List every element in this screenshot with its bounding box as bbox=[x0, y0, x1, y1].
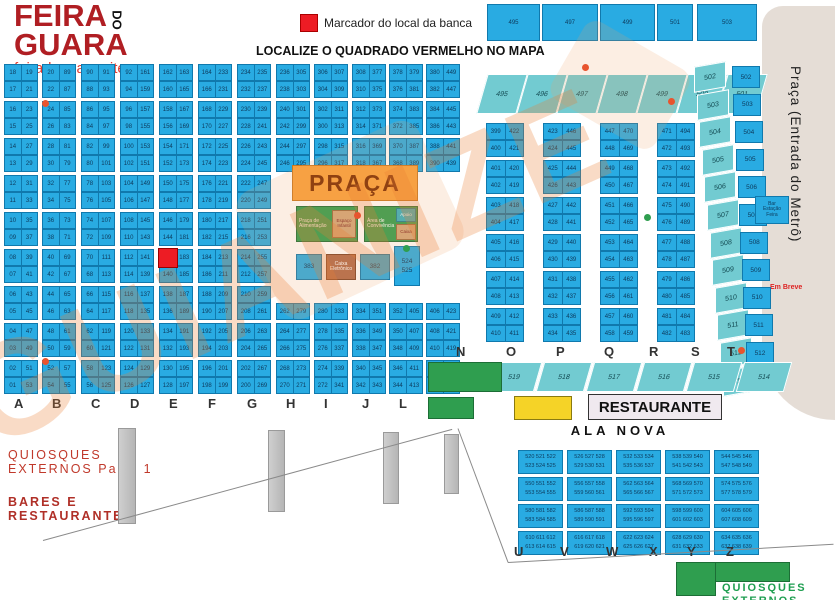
stall-cell[interactable]: 206 bbox=[238, 324, 255, 339]
stall-cell[interactable]: 37 bbox=[22, 230, 38, 245]
stall-cell[interactable]: 90 bbox=[82, 65, 99, 80]
stall-cell[interactable]: 409 bbox=[487, 309, 506, 324]
stall-cell[interactable]: 445 bbox=[444, 102, 460, 117]
stall-cell[interactable]: 439 bbox=[444, 156, 460, 171]
stall-cell[interactable]: 149 bbox=[138, 176, 154, 191]
stall-cell[interactable]: 226 bbox=[238, 139, 255, 154]
stall-cell[interactable]: 192 bbox=[199, 324, 216, 339]
stall-cell[interactable]: 464 bbox=[620, 235, 638, 250]
stall-cell[interactable]: 374 bbox=[390, 102, 407, 117]
stall-cell[interactable]: 15 bbox=[5, 119, 22, 134]
stall-cell[interactable]: 444 bbox=[563, 161, 581, 176]
stall-cell[interactable]: 98 bbox=[121, 119, 138, 134]
stall-cell[interactable]: 495 bbox=[487, 4, 540, 41]
stall-cell[interactable]: 200 bbox=[238, 378, 255, 393]
stall-cell[interactable]: 102 bbox=[121, 156, 138, 171]
stall-cell[interactable]: 511 bbox=[745, 314, 773, 336]
stall-cell[interactable]: 431 bbox=[544, 272, 563, 287]
stall-cell[interactable]: 128 bbox=[160, 378, 177, 393]
stall-cell[interactable]: 310 bbox=[353, 82, 370, 97]
stall-cell[interactable]: 381 bbox=[407, 82, 423, 97]
stall-cell[interactable]: 53 bbox=[22, 378, 38, 393]
stall-cell[interactable]: 178 bbox=[199, 193, 216, 208]
stall-cell[interactable]: 300 bbox=[315, 119, 332, 134]
stall-cell[interactable]: 508 bbox=[710, 227, 742, 259]
stall-cell[interactable]: 150 bbox=[160, 176, 177, 191]
stall-cell[interactable]: 18 bbox=[5, 65, 22, 80]
stall-cell[interactable]: 306 bbox=[315, 65, 332, 80]
stall-cell[interactable]: 34 bbox=[43, 193, 60, 208]
stall-cell[interactable]: 49 bbox=[22, 341, 38, 356]
stall-cell[interactable]: 438 bbox=[563, 272, 581, 287]
stall-cell[interactable]: 210 bbox=[238, 287, 255, 302]
stall-cell[interactable]: 504 bbox=[699, 116, 731, 148]
stall-cell[interactable]: 311 bbox=[332, 102, 348, 117]
stall-cell[interactable]: 199 bbox=[216, 378, 232, 393]
stall-cell[interactable]: 413 bbox=[506, 289, 524, 304]
stall-cell[interactable]: 54 bbox=[43, 378, 60, 393]
stall-cell[interactable]: 409 bbox=[407, 341, 423, 356]
stall-cell[interactable]: 86 bbox=[82, 102, 99, 117]
stall-cell[interactable]: 515 bbox=[686, 362, 743, 392]
stall-cell[interactable]: 504 bbox=[735, 121, 763, 143]
stall-cell[interactable]: 481 bbox=[658, 309, 677, 324]
stall-cell[interactable]: 428 bbox=[544, 215, 563, 230]
stall-cell[interactable]: 378 bbox=[390, 65, 407, 80]
stall-cell[interactable]: 249 bbox=[255, 193, 271, 208]
stall-cell[interactable]: 518 bbox=[536, 362, 593, 392]
stall-cell[interactable]: 146 bbox=[160, 213, 177, 228]
stall-cell[interactable]: 275 bbox=[294, 341, 310, 356]
stall-block[interactable]: 634 635 636637 638 639 bbox=[714, 531, 759, 555]
stall-cell[interactable]: 167 bbox=[177, 102, 193, 117]
stall-cell[interactable]: 512 bbox=[746, 342, 774, 364]
stall-cell[interactable]: 27 bbox=[22, 139, 38, 154]
stall-cell[interactable]: 298 bbox=[315, 139, 332, 154]
stall-cell[interactable]: 189 bbox=[177, 304, 193, 319]
stall-cell[interactable]: 208 bbox=[238, 304, 255, 319]
stall-cell[interactable]: 480 bbox=[658, 289, 677, 304]
stall-cell[interactable]: 127 bbox=[138, 378, 154, 393]
stall-cell[interactable]: 13 bbox=[5, 156, 22, 171]
stall-cell[interactable]: 236 bbox=[277, 65, 294, 80]
stall-cell[interactable]: 462 bbox=[620, 272, 638, 287]
stall-cell[interactable]: 223 bbox=[216, 156, 232, 171]
stall-cell[interactable]: 92 bbox=[121, 65, 138, 80]
stall-cell[interactable]: 40 bbox=[43, 250, 60, 265]
stall-cell[interactable]: 505 bbox=[702, 144, 734, 176]
stall-cell[interactable]: 279 bbox=[294, 304, 310, 319]
stall-cell[interactable]: 213 bbox=[216, 250, 232, 265]
stall-cell[interactable]: 144 bbox=[160, 230, 177, 245]
stall-cell[interactable]: 418 bbox=[506, 198, 524, 213]
stall-block[interactable]: 520 521 522523 524 525 bbox=[518, 450, 563, 474]
stall-cell[interactable]: 380 bbox=[427, 65, 444, 80]
stall-cell[interactable]: 403 bbox=[487, 198, 506, 213]
stall-cell[interactable]: 454 bbox=[601, 252, 620, 267]
stall-cell[interactable]: 65 bbox=[60, 287, 76, 302]
stall-cell[interactable]: 338 bbox=[353, 341, 370, 356]
stall-cell[interactable]: 117 bbox=[99, 304, 115, 319]
stall-cell[interactable]: 08 bbox=[5, 250, 22, 265]
stall-cell[interactable]: 472 bbox=[658, 141, 677, 156]
stall-cell[interactable]: 373 bbox=[370, 102, 386, 117]
stall-cell[interactable]: 26 bbox=[43, 119, 60, 134]
stall-cell[interactable]: 12 bbox=[5, 176, 22, 191]
stall-cell[interactable]: 161 bbox=[138, 65, 154, 80]
stall-cell[interactable]: 175 bbox=[177, 176, 193, 191]
stall-cell[interactable]: 153 bbox=[138, 139, 154, 154]
stall-cell[interactable]: 449 bbox=[444, 65, 460, 80]
stall-cell[interactable]: 352 bbox=[390, 304, 407, 319]
stall-cell[interactable]: 251 bbox=[255, 213, 271, 228]
stall-cell[interactable]: 50 bbox=[43, 341, 60, 356]
stall-cell[interactable]: 344 bbox=[390, 378, 407, 393]
stall-cell[interactable]: 163 bbox=[177, 65, 193, 80]
stall-cell[interactable]: 215 bbox=[216, 230, 232, 245]
stall-cell[interactable]: 385 bbox=[407, 119, 423, 134]
stall-cell[interactable]: 483 bbox=[677, 326, 695, 341]
stall-cell[interactable]: 159 bbox=[138, 82, 154, 97]
stall-cell[interactable]: 424 bbox=[544, 141, 563, 156]
stall-block[interactable]: 580 581 582583 584 585 bbox=[518, 504, 563, 528]
stall-cell[interactable]: 304 bbox=[315, 82, 332, 97]
stall-cell[interactable]: 134 bbox=[160, 324, 177, 339]
stall-cell[interactable]: 351 bbox=[370, 304, 386, 319]
stall-cell[interactable]: 313 bbox=[332, 119, 348, 134]
stall-cell[interactable]: 280 bbox=[315, 304, 332, 319]
stall-cell[interactable]: 435 bbox=[563, 326, 581, 341]
stall-cell[interactable]: 83 bbox=[60, 119, 76, 134]
stall-cell[interactable]: 503 bbox=[733, 94, 761, 116]
stall-cell[interactable]: 334 bbox=[353, 304, 370, 319]
stall-cell[interactable]: 221 bbox=[216, 176, 232, 191]
stall-cell[interactable]: 74 bbox=[82, 213, 99, 228]
stall-cell[interactable]: 88 bbox=[82, 82, 99, 97]
stall-block[interactable]: 574 575 576577 578 579 bbox=[714, 477, 759, 501]
stall-cell[interactable]: 407 bbox=[407, 324, 423, 339]
stall-block[interactable]: 556 557 558559 560 561 bbox=[567, 477, 612, 501]
stall-cell[interactable]: 253 bbox=[255, 230, 271, 245]
stall-cell[interactable]: 179 bbox=[177, 213, 193, 228]
stall-cell[interactable]: 479 bbox=[658, 272, 677, 287]
stall-cell[interactable]: 276 bbox=[315, 341, 332, 356]
stall-cell[interactable]: 419 bbox=[506, 178, 524, 193]
stall-cell[interactable]: 259 bbox=[255, 287, 271, 302]
stall-cell[interactable]: 82 bbox=[82, 139, 99, 154]
stall-cell[interactable]: 123 bbox=[99, 361, 115, 376]
stall-cell[interactable]: 75 bbox=[60, 193, 76, 208]
stall-cell[interactable]: 120 bbox=[121, 324, 138, 339]
stall-cell[interactable]: 486 bbox=[677, 272, 695, 287]
stall-block[interactable]: 538 539 540541 542 543 bbox=[665, 450, 710, 474]
stall-cell[interactable]: 31 bbox=[22, 176, 38, 191]
stall-cell[interactable]: 263 bbox=[255, 324, 271, 339]
stall-cell[interactable]: 211 bbox=[216, 267, 232, 282]
stall-cell[interactable]: 183 bbox=[177, 250, 193, 265]
stall-383[interactable]: 383 bbox=[296, 254, 322, 280]
stall-cell[interactable]: 491 bbox=[677, 178, 695, 193]
stall-cell[interactable]: 459 bbox=[620, 326, 638, 341]
stall-cell[interactable]: 51 bbox=[22, 361, 38, 376]
stall-cell[interactable]: 230 bbox=[238, 102, 255, 117]
stall-cell[interactable]: 440 bbox=[563, 235, 581, 250]
stall-block[interactable]: 562 563 564565 566 567 bbox=[616, 477, 661, 501]
stall-cell[interactable]: 16 bbox=[5, 102, 22, 117]
stall-cell[interactable]: 106 bbox=[121, 193, 138, 208]
stall-cell[interactable]: 177 bbox=[177, 193, 193, 208]
stall-cell[interactable]: 390 bbox=[427, 156, 444, 171]
stall-cell[interactable]: 46 bbox=[43, 304, 60, 319]
stall-cell[interactable]: 430 bbox=[544, 252, 563, 267]
stall-cell[interactable]: 22 bbox=[43, 82, 60, 97]
stall-block[interactable]: 568 569 570571 572 573 bbox=[665, 477, 710, 501]
stall-524-525[interactable]: 524 525 bbox=[394, 246, 420, 286]
stall-cell[interactable]: 457 bbox=[601, 309, 620, 324]
stall-cell[interactable]: 188 bbox=[199, 287, 216, 302]
stall-cell[interactable]: 137 bbox=[138, 287, 154, 302]
stall-cell[interactable]: 233 bbox=[216, 65, 232, 80]
stall-cell[interactable]: 228 bbox=[238, 119, 255, 134]
stall-cell[interactable]: 505 bbox=[736, 149, 764, 171]
stall-cell[interactable]: 441 bbox=[563, 215, 581, 230]
stall-cell[interactable]: 377 bbox=[370, 65, 386, 80]
stall-cell[interactable]: 274 bbox=[315, 361, 332, 376]
stall-cell[interactable]: 191 bbox=[177, 324, 193, 339]
stall-cell[interactable]: 305 bbox=[294, 65, 310, 80]
stall-cell[interactable]: 216 bbox=[238, 230, 255, 245]
stall-cell[interactable]: 449 bbox=[601, 161, 620, 176]
stall-cell[interactable]: 214 bbox=[238, 250, 255, 265]
stall-cell[interactable]: 10 bbox=[5, 213, 22, 228]
stall-cell[interactable]: 270 bbox=[277, 378, 294, 393]
stall-cell[interactable]: 400 bbox=[487, 141, 506, 156]
stall-cell[interactable]: 309 bbox=[332, 82, 348, 97]
stall-cell[interactable]: 66 bbox=[82, 287, 99, 302]
stall-cell[interactable]: 124 bbox=[121, 361, 138, 376]
stall-cell[interactable]: 343 bbox=[370, 378, 386, 393]
stall-cell[interactable]: 105 bbox=[99, 193, 115, 208]
stall-cell[interactable]: 417 bbox=[506, 215, 524, 230]
stall-cell[interactable]: 114 bbox=[121, 267, 138, 282]
stall-cell[interactable]: 38 bbox=[43, 230, 60, 245]
stall-cell[interactable]: 205 bbox=[216, 324, 232, 339]
stall-cell[interactable]: 131 bbox=[138, 341, 154, 356]
stall-cell[interactable]: 379 bbox=[407, 65, 423, 80]
stall-cell[interactable]: 414 bbox=[506, 272, 524, 287]
stall-cell[interactable]: 147 bbox=[138, 193, 154, 208]
stall-cell[interactable]: 95 bbox=[99, 102, 115, 117]
stall-cell[interactable]: 212 bbox=[238, 267, 255, 282]
stall-cell[interactable]: 427 bbox=[544, 198, 563, 213]
stall-cell[interactable]: 154 bbox=[160, 139, 177, 154]
stall-cell[interactable]: 350 bbox=[390, 324, 407, 339]
stall-cell[interactable]: 466 bbox=[620, 198, 638, 213]
stall-cell[interactable]: 11 bbox=[5, 193, 22, 208]
stall-cell[interactable]: 176 bbox=[199, 176, 216, 191]
stall-cell[interactable]: 07 bbox=[5, 267, 22, 282]
stall-cell[interactable]: 507 bbox=[707, 199, 739, 231]
stall-cell[interactable]: 157 bbox=[138, 102, 154, 117]
stall-cell[interactable]: 455 bbox=[601, 272, 620, 287]
stall-cell[interactable]: 119 bbox=[99, 324, 115, 339]
stall-cell[interactable]: 314 bbox=[353, 119, 370, 134]
stall-cell[interactable]: 145 bbox=[138, 213, 154, 228]
stall-cell[interactable]: 441 bbox=[444, 139, 460, 154]
stall-cell[interactable]: 244 bbox=[277, 139, 294, 154]
stall-cell[interactable]: 406 bbox=[487, 252, 506, 267]
stall-cell[interactable]: 112 bbox=[121, 250, 138, 265]
stall-cell[interactable]: 482 bbox=[658, 326, 677, 341]
stall-cell[interactable]: 509 bbox=[742, 259, 770, 281]
stall-cell[interactable]: 171 bbox=[177, 139, 193, 154]
stall-cell[interactable]: 78 bbox=[82, 176, 99, 191]
stall-cell[interactable]: 89 bbox=[60, 65, 76, 80]
stall-cell[interactable]: 132 bbox=[160, 341, 177, 356]
stall-cell[interactable]: 301 bbox=[294, 102, 310, 117]
stall-cell[interactable]: 503 bbox=[697, 89, 729, 121]
stall-cell[interactable]: 255 bbox=[255, 250, 271, 265]
stall-cell[interactable]: 165 bbox=[177, 82, 193, 97]
stall-cell[interactable]: 181 bbox=[177, 230, 193, 245]
stall-cell[interactable]: 76 bbox=[82, 193, 99, 208]
stall-cell[interactable]: 170 bbox=[199, 119, 216, 134]
stall-cell[interactable]: 140 bbox=[160, 267, 177, 282]
stall-cell[interactable]: 271 bbox=[294, 378, 310, 393]
stall-cell[interactable]: 231 bbox=[216, 82, 232, 97]
stall-cell[interactable]: 58 bbox=[82, 361, 99, 376]
stall-cell[interactable]: 443 bbox=[563, 178, 581, 193]
stall-cell[interactable]: 307 bbox=[332, 65, 348, 80]
stall-cell[interactable]: 278 bbox=[315, 324, 332, 339]
stall-cell[interactable]: 369 bbox=[370, 139, 386, 154]
stall-cell[interactable]: 219 bbox=[216, 193, 232, 208]
stall-cell[interactable]: 488 bbox=[677, 235, 695, 250]
stall-cell[interactable]: 109 bbox=[99, 230, 115, 245]
stall-cell[interactable]: 450 bbox=[601, 178, 620, 193]
stall-cell[interactable]: 209 bbox=[216, 287, 232, 302]
stall-block[interactable]: 526 527 528529 530 531 bbox=[567, 450, 612, 474]
stall-cell[interactable]: 184 bbox=[199, 250, 216, 265]
stall-cell[interactable]: 59 bbox=[60, 341, 76, 356]
stall-cell[interactable]: 416 bbox=[506, 235, 524, 250]
stall-cell[interactable]: 94 bbox=[121, 82, 138, 97]
stall-cell[interactable]: 346 bbox=[390, 361, 407, 376]
stall-cell[interactable]: 339 bbox=[332, 361, 348, 376]
stall-cell[interactable]: 63 bbox=[60, 304, 76, 319]
stall-cell[interactable]: 80 bbox=[82, 156, 99, 171]
stall-cell[interactable]: 195 bbox=[177, 361, 193, 376]
stall-cell[interactable]: 272 bbox=[315, 378, 332, 393]
stall-block[interactable]: 592 593 594595 596 597 bbox=[616, 504, 661, 528]
stall-cell[interactable]: 402 bbox=[487, 178, 506, 193]
stall-cell[interactable]: 415 bbox=[506, 252, 524, 267]
stall-cell[interactable]: 247 bbox=[255, 176, 271, 191]
stall-cell[interactable]: 489 bbox=[677, 215, 695, 230]
stall-cell[interactable]: 443 bbox=[444, 119, 460, 134]
stall-cell[interactable]: 97 bbox=[99, 119, 115, 134]
stall-cell[interactable]: 470 bbox=[620, 124, 638, 139]
stall-cell[interactable]: 196 bbox=[199, 361, 216, 376]
stall-cell[interactable]: 348 bbox=[390, 341, 407, 356]
stall-cell[interactable]: 135 bbox=[138, 304, 154, 319]
stall-cell[interactable]: 69 bbox=[60, 250, 76, 265]
stall-cell[interactable]: 96 bbox=[121, 102, 138, 117]
stall-cell[interactable]: 445 bbox=[563, 141, 581, 156]
stall-cell[interactable]: 64 bbox=[82, 304, 99, 319]
stall-block[interactable]: 604 605 606607 608 609 bbox=[714, 504, 759, 528]
stall-cell[interactable]: 121 bbox=[99, 341, 115, 356]
stall-cell[interactable]: 156 bbox=[160, 119, 177, 134]
stall-cell[interactable]: 235 bbox=[255, 65, 271, 80]
stall-cell[interactable]: 471 bbox=[658, 124, 677, 139]
stall-cell[interactable]: 122 bbox=[121, 341, 138, 356]
stall-cell[interactable]: 09 bbox=[5, 230, 22, 245]
stall-cell[interactable]: 155 bbox=[138, 119, 154, 134]
stall-cell[interactable]: 448 bbox=[601, 141, 620, 156]
stall-cell[interactable]: 302 bbox=[315, 102, 332, 117]
stall-cell[interactable]: 03 bbox=[5, 341, 22, 356]
stall-cell[interactable]: 203 bbox=[216, 341, 232, 356]
stall-cell[interactable]: 383 bbox=[407, 102, 423, 117]
stall-cell[interactable]: 70 bbox=[82, 250, 99, 265]
stall-cell[interactable]: 473 bbox=[658, 161, 677, 176]
stall-cell[interactable]: 376 bbox=[390, 82, 407, 97]
stall-cell[interactable]: 265 bbox=[255, 341, 271, 356]
stall-cell[interactable]: 316 bbox=[353, 139, 370, 154]
stall-cell[interactable]: 370 bbox=[390, 139, 407, 154]
stall-cell[interactable]: 510 bbox=[715, 282, 747, 314]
stall-cell[interactable]: 180 bbox=[199, 213, 216, 228]
stall-cell[interactable]: 453 bbox=[601, 235, 620, 250]
stall-cell[interactable]: 143 bbox=[138, 230, 154, 245]
stall-cell[interactable]: 506 bbox=[704, 172, 736, 204]
stall-cell[interactable]: 297 bbox=[294, 139, 310, 154]
stall-cell[interactable]: 151 bbox=[138, 156, 154, 171]
stall-cell[interactable]: 186 bbox=[199, 267, 216, 282]
stall-cell[interactable]: 308 bbox=[353, 65, 370, 80]
stall-cell[interactable]: 115 bbox=[99, 287, 115, 302]
stall-cell[interactable]: 25 bbox=[22, 119, 38, 134]
stall-cell[interactable]: 118 bbox=[121, 304, 138, 319]
stall-cell[interactable]: 262 bbox=[277, 304, 294, 319]
stall-cell[interactable]: 84 bbox=[82, 119, 99, 134]
stall-cell[interactable]: 23 bbox=[22, 102, 38, 117]
stall-block[interactable]: 544 545 546547 548 549 bbox=[714, 450, 759, 474]
stall-cell[interactable]: 238 bbox=[277, 82, 294, 97]
stall-cell[interactable]: 405 bbox=[407, 304, 423, 319]
stall-cell[interactable]: 48 bbox=[43, 324, 60, 339]
stall-cell[interactable]: 93 bbox=[99, 82, 115, 97]
stall-cell[interactable]: 501 bbox=[657, 4, 693, 41]
stall-cell[interactable]: 241 bbox=[255, 119, 271, 134]
stall-cell[interactable]: 514 bbox=[736, 362, 793, 392]
stall-cell[interactable]: 375 bbox=[370, 82, 386, 97]
stall-cell[interactable]: 101 bbox=[99, 156, 115, 171]
stall-cell[interactable]: 408 bbox=[487, 289, 506, 304]
stall-cell[interactable]: 67 bbox=[60, 267, 76, 282]
stall-cell[interactable]: 447 bbox=[601, 124, 620, 139]
stall-cell[interactable]: 257 bbox=[255, 267, 271, 282]
stall-cell[interactable]: 148 bbox=[160, 193, 177, 208]
stall-cell[interactable]: 411 bbox=[407, 361, 423, 376]
stall-cell[interactable]: 30 bbox=[43, 156, 60, 171]
stall-cell[interactable]: 413 bbox=[407, 378, 423, 393]
stall-cell[interactable]: 72 bbox=[82, 230, 99, 245]
stall-cell[interactable]: 19 bbox=[22, 65, 38, 80]
stall-cell[interactable]: 57 bbox=[60, 361, 76, 376]
stall-cell[interactable]: 222 bbox=[238, 176, 255, 191]
